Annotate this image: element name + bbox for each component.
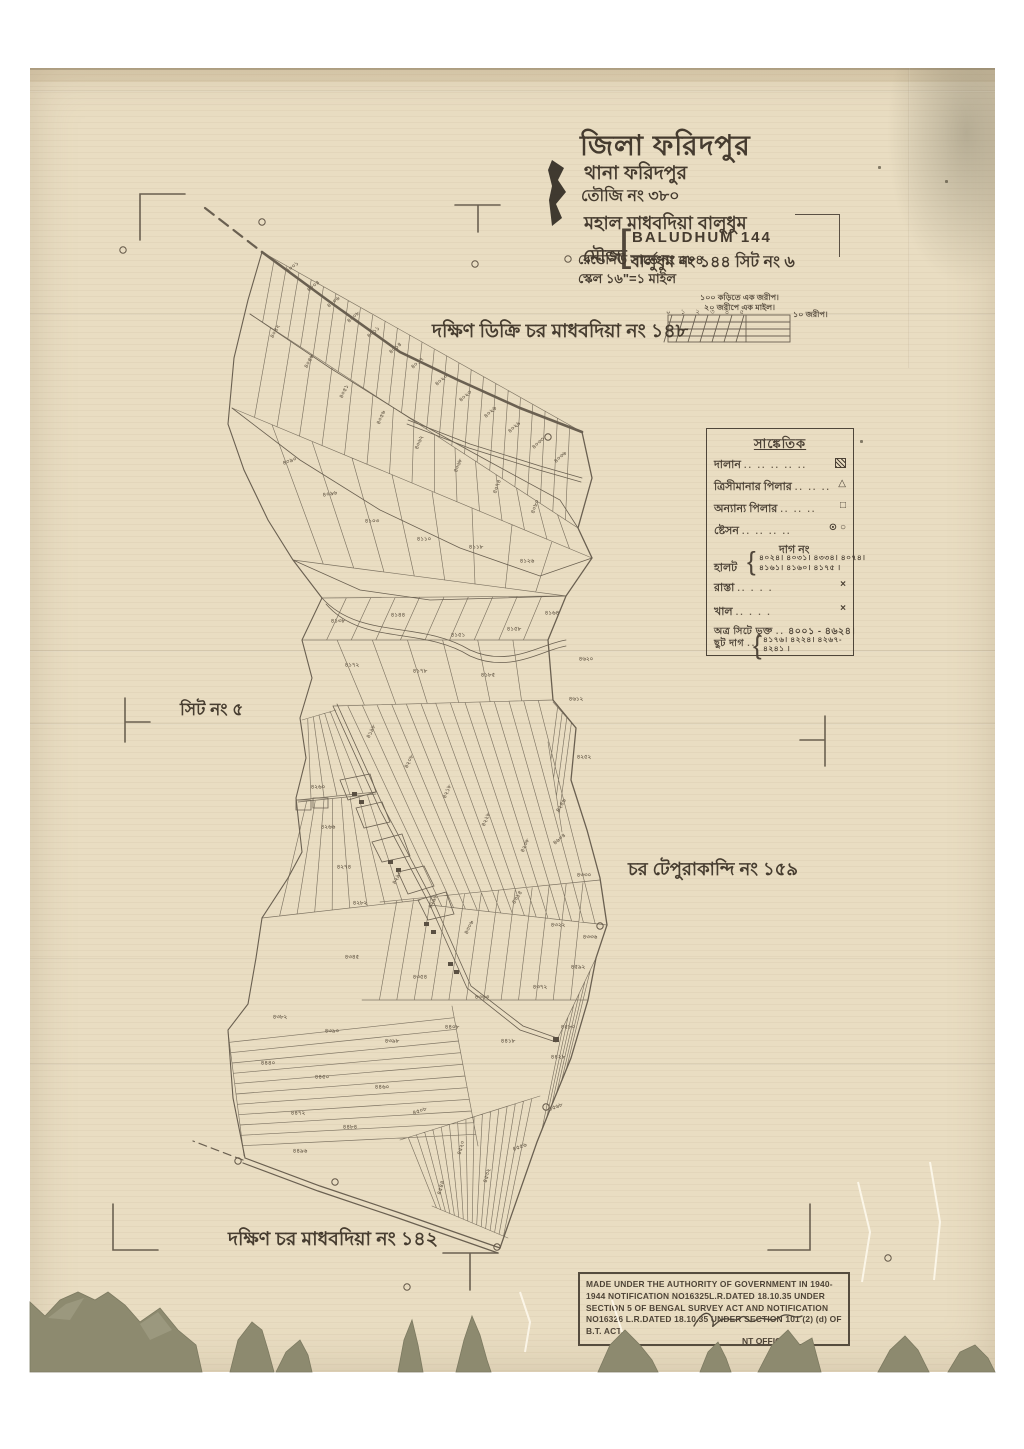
torn-paper-edge — [0, 0, 1024, 1449]
scanned-map-page: ৪০০১৪০০৪৪০০৬৪০০৮৪০১১৪০১৪৪০১৭৪০২০৪০২৩৪০২৬… — [0, 0, 1024, 1449]
